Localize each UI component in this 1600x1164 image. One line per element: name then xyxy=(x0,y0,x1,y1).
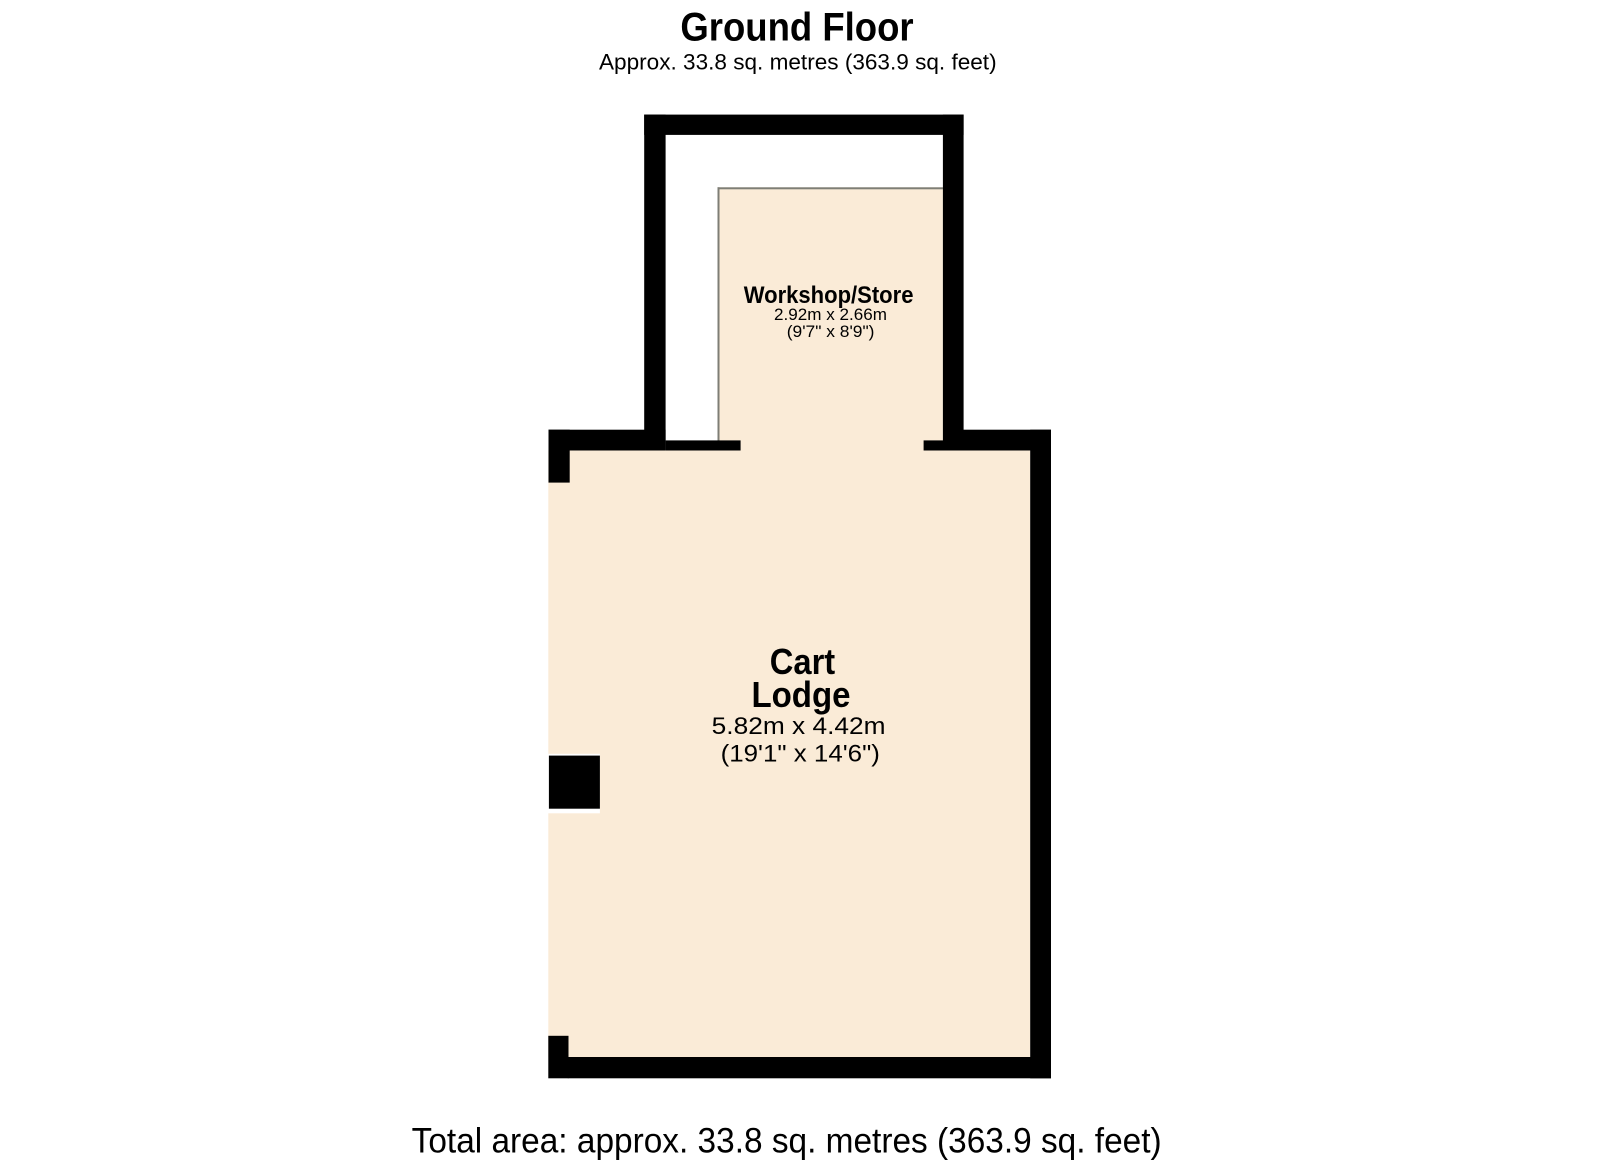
svg-text:(9'7" x 8'9"): (9'7" x 8'9") xyxy=(787,322,875,341)
svg-text:Ground Floor: Ground Floor xyxy=(680,6,913,50)
svg-text:Lodge: Lodge xyxy=(751,674,850,715)
svg-text:2.92m x 2.66m: 2.92m x 2.66m xyxy=(774,305,887,324)
svg-text:Approx. 33.8 sq. metres (363.9: Approx. 33.8 sq. metres (363.9 sq. feet) xyxy=(599,50,997,75)
svg-text:(19'1" x 14'6"): (19'1" x 14'6") xyxy=(721,741,880,768)
svg-text:Total area: approx. 33.8 sq. m: Total area: approx. 33.8 sq. metres (363… xyxy=(412,1122,1162,1161)
svg-text:5.82m x 4.42m: 5.82m x 4.42m xyxy=(712,713,886,740)
